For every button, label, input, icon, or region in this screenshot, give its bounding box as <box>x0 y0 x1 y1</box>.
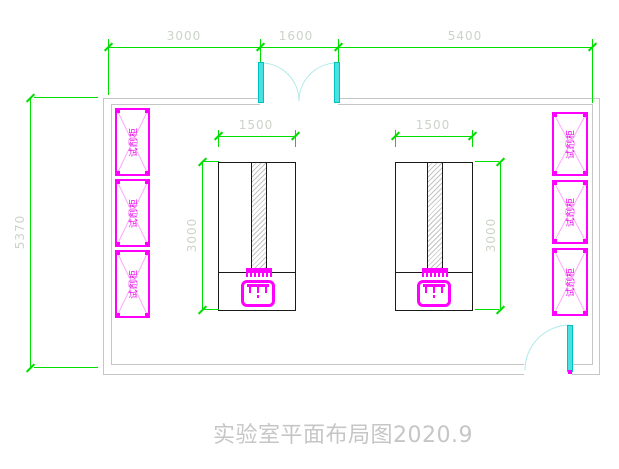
cabinet-label: 试剂柜 <box>126 198 139 228</box>
door-hinge-icon <box>568 370 572 374</box>
room-inner-wall <box>111 104 593 365</box>
faucet-tick-icon <box>441 287 443 293</box>
dimension-tick <box>26 363 35 372</box>
faucet-tick-icon <box>257 287 259 293</box>
floor-plan-canvas: 3000 1600 5400 5370 试剂柜 试剂柜 试剂柜 试剂柜 试剂柜 <box>0 0 619 469</box>
dimension-label-5400: 5400 <box>435 29 495 43</box>
reagent-cabinet: 试剂柜 <box>115 108 150 176</box>
dimension-label-3000: 3000 <box>154 29 214 43</box>
cabinet-label: 试剂柜 <box>564 197 577 227</box>
reagent-cabinet: 试剂柜 <box>115 250 150 318</box>
reagent-cabinet: 试剂柜 <box>552 112 588 176</box>
faucet-tick-icon <box>433 287 435 293</box>
dimension-label-bench-width: 1500 <box>226 118 286 132</box>
faucet-tick-icon <box>425 287 427 293</box>
extension-line <box>34 367 98 368</box>
faucet-drop-icon <box>257 295 259 298</box>
cabinet-label: 试剂柜 <box>564 267 577 297</box>
dimension-line-benchB-width <box>395 136 473 137</box>
bottom-door-opening <box>524 357 572 377</box>
bench-shelf-strip <box>251 163 267 273</box>
dimension-line-benchB-depth <box>500 162 501 311</box>
top-door-opening <box>260 96 338 107</box>
extension-line <box>338 39 339 63</box>
extension-line <box>204 161 219 162</box>
extension-line <box>204 309 219 310</box>
dimension-label-1600: 1600 <box>266 29 326 43</box>
bench-shelf-strip <box>427 163 443 273</box>
faucet-tick-icon <box>265 287 267 293</box>
dimension-line-benchA-width <box>218 136 296 137</box>
cabinet-label: 试剂柜 <box>564 129 577 159</box>
dimension-label-bench-depth: 3000 <box>185 199 199 271</box>
reagent-cabinet: 试剂柜 <box>552 180 588 244</box>
dimension-label-5370: 5370 <box>13 196 27 268</box>
door-leaf <box>334 62 340 103</box>
drawing-title: 实验室平面布局图2020.9 <box>193 417 493 449</box>
faucet-drop-icon <box>433 295 435 298</box>
faucet-tick-icon <box>249 287 251 293</box>
dimension-label-bench-depth: 3000 <box>484 199 498 271</box>
extension-line <box>260 39 261 63</box>
dimension-label-bench-width: 1500 <box>403 118 463 132</box>
extension-line <box>34 97 98 98</box>
dimension-line-benchA-depth <box>202 162 203 311</box>
cabinet-label: 试剂柜 <box>126 127 139 157</box>
door-leaf <box>258 62 264 103</box>
dimension-line-left <box>30 98 31 369</box>
extension-line <box>475 161 499 162</box>
extension-line <box>475 309 499 310</box>
dimension-line-top <box>108 47 593 48</box>
cabinet-label: 试剂柜 <box>126 269 139 299</box>
sink-grille-teeth <box>422 273 448 277</box>
door-leaf <box>567 325 573 372</box>
sink-grille-teeth <box>246 273 272 277</box>
reagent-cabinet: 试剂柜 <box>552 248 588 316</box>
reagent-cabinet: 试剂柜 <box>115 179 150 247</box>
